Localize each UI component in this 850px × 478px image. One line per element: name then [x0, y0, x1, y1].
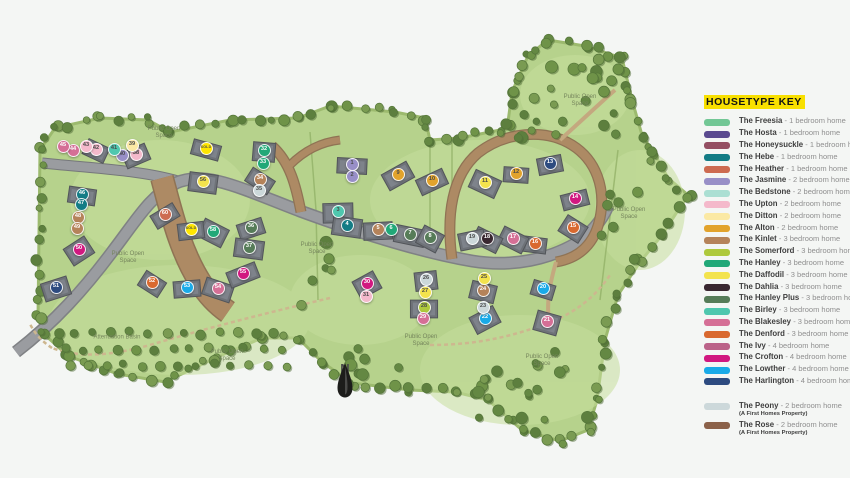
housetype-color-swatch — [704, 213, 730, 220]
legend-item: The Hebe - 1 bedroom home — [704, 151, 844, 163]
legend-item: The Ditton - 2 bedroom home — [704, 210, 844, 222]
legend-item: The Kinlet - 3 bedroom home — [704, 234, 844, 246]
plot-marker-16[interactable]: 16 — [529, 237, 542, 250]
plot-marker-19[interactable]: 19 — [466, 232, 479, 245]
legend-item: The Hanley - 3 bedroom home — [704, 258, 844, 270]
first-homes-note: (A First Homes Property) — [739, 430, 838, 437]
housetype-label: The Kinlet - 3 bedroom home — [739, 235, 840, 244]
plot-marker-43[interactable]: 43 — [80, 140, 93, 153]
plot-marker-49[interactable]: 49 — [71, 222, 84, 235]
plot-marker-15[interactable]: 15 — [567, 221, 580, 234]
plot-marker-51[interactable]: 51 — [50, 281, 63, 294]
housetype-color-swatch — [704, 355, 730, 362]
housetype-label: The Freesia - 1 bedroom home — [739, 117, 846, 126]
plot-marker-33[interactable]: 33 — [257, 157, 270, 170]
legend-item: The Dahlia - 3 bedroom home — [704, 281, 844, 293]
housetype-label: The Hanley Plus - 3 bedroom home — [739, 294, 850, 303]
plot-marker-54[interactable]: 54 — [212, 282, 225, 295]
housetype-label: The Jasmine - 2 bedroom home — [739, 176, 850, 185]
plot-marker-29[interactable]: 29 — [417, 312, 430, 325]
plot-marker-56[interactable]: 56 — [197, 175, 210, 188]
north-arrow-icon — [331, 362, 359, 398]
plot-marker-6[interactable]: 6 — [385, 223, 398, 236]
housetype-label: The Heather - 1 bedroom home — [739, 165, 848, 174]
housetype-color-swatch — [704, 319, 730, 326]
legend-item: The Daffodil - 3 bedroom home — [704, 269, 844, 281]
plot-marker-45[interactable]: 45 — [57, 140, 70, 153]
housetype-color-swatch — [704, 201, 730, 208]
housetype-label: The Harlington - 4 bedroom home — [739, 377, 850, 386]
housetype-label: The Lowther - 4 bedroom home — [739, 365, 849, 374]
plot-marker-58[interactable]: 58 — [207, 225, 220, 238]
plot-marker-60[interactable]: 60 — [159, 208, 172, 221]
plot-marker-8[interactable]: 8 — [424, 231, 437, 244]
legend-item: The Lowther - 4 bedroom home — [704, 364, 844, 376]
housetype-label: The Ditton - 2 bedroom home — [739, 212, 841, 221]
legend-item: The Denford - 3 bedroom home — [704, 328, 844, 340]
legend-item: The Rose - 2 bedroom home(A First Homes … — [704, 421, 844, 437]
housetype-color-swatch — [704, 343, 730, 350]
plot-marker-41[interactable]: 41 — [108, 143, 121, 156]
first-homes-note: (A First Homes Property) — [739, 411, 842, 418]
plot-marker-17[interactable]: 17 — [507, 232, 520, 245]
housetype-color-swatch — [704, 378, 730, 385]
housetype-label: The Dahlia - 3 bedroom home — [739, 283, 842, 292]
housetype-label: The Denford - 3 bedroom home — [739, 330, 848, 339]
housetype-color-swatch — [704, 190, 730, 197]
legend-item: The Heather - 1 bedroom home — [704, 163, 844, 175]
plot-marker-20[interactable]: 20 — [537, 282, 550, 295]
housetype-color-swatch — [704, 178, 730, 185]
plot-marker-37[interactable]: 37 — [243, 241, 256, 254]
legend-item: The Alton - 2 bedroom home — [704, 222, 844, 234]
plot-marker-39[interactable]: 39 — [126, 139, 139, 152]
plot-marker-27[interactable]: 27 — [419, 286, 432, 299]
housetype-color-swatch — [704, 142, 730, 149]
plot-marker-36[interactable]: 36 — [245, 221, 258, 234]
plot-marker-7[interactable]: 7 — [404, 228, 417, 241]
housetype-label: The Blakesley - 3 bedroom home — [739, 318, 850, 327]
plot-marker-1[interactable]: 1 — [346, 158, 359, 171]
housetype-label: The Honeysuckle - 1 bedroom home — [739, 141, 850, 150]
legend-item: The Harlington - 4 bedroom home — [704, 376, 844, 388]
plot-marker-13[interactable]: 13 — [544, 157, 557, 170]
plot-marker-sold[interactable]: SOLD — [185, 223, 198, 236]
plot-marker-53[interactable]: 53 — [181, 281, 194, 294]
legend-item: The Bedstone - 2 bedroom home — [704, 187, 844, 199]
legend-title: HOUSETYPE KEY — [704, 95, 805, 109]
plot-marker-3[interactable]: 3 — [332, 205, 345, 218]
legend-item: The Ivy - 4 bedroom home — [704, 340, 844, 352]
plot-marker-47[interactable]: 47 — [75, 198, 88, 211]
housetype-color-swatch — [704, 331, 730, 338]
plot-marker-14[interactable]: 14 — [569, 192, 582, 205]
housetype-label: The Daffodil - 3 bedroom home — [739, 271, 848, 280]
housetype-label: The Hanley - 3 bedroom home — [739, 259, 844, 268]
housetype-label: The Crofton - 4 bedroom home — [739, 353, 847, 362]
housetype-color-swatch — [704, 403, 730, 410]
plot-marker-24[interactable]: 24 — [477, 284, 490, 297]
north-compass: N — [331, 362, 359, 376]
plot-marker-4[interactable]: 4 — [341, 219, 354, 232]
housetype-color-swatch — [704, 422, 730, 429]
legend-item: The Birley - 3 bedroom home — [704, 305, 844, 317]
housetype-label: The Peony - 2 bedroom home(A First Homes… — [739, 402, 842, 418]
plot-marker-21[interactable]: 21 — [541, 315, 554, 328]
plot-marker-2[interactable]: 2 — [346, 170, 359, 183]
housetype-color-swatch — [704, 296, 730, 303]
legend-item: The Freesia - 1 bedroom home — [704, 116, 844, 128]
legend-item: The Blakesley - 3 bedroom home — [704, 317, 844, 329]
housetype-color-swatch — [704, 260, 730, 267]
housetype-label: The Bedstone - 2 bedroom home — [739, 188, 850, 197]
plot-marker-18[interactable]: 18 — [481, 232, 494, 245]
plot-marker-26[interactable]: 26 — [420, 273, 433, 286]
housetype-label: The Somerford - 3 bedroom home — [739, 247, 850, 256]
housetype-color-swatch — [704, 154, 730, 161]
plot-marker-sold[interactable]: SOLD — [200, 142, 213, 155]
housetype-color-swatch — [704, 284, 730, 291]
plot-marker-5[interactable]: 5 — [372, 223, 385, 236]
housetype-color-swatch — [704, 272, 730, 279]
housetype-label: The Hebe - 1 bedroom home — [739, 153, 838, 162]
plot-marker-25[interactable]: 25 — [478, 272, 491, 285]
plot-marker-32[interactable]: 32 — [258, 144, 271, 157]
housetype-color-swatch — [704, 225, 730, 232]
housetype-label: The Hosta - 1 bedroom home — [739, 129, 840, 138]
housetype-label: The Upton - 2 bedroom home — [739, 200, 841, 209]
plot-marker-31[interactable]: 31 — [360, 290, 373, 303]
housetype-key-items: The Freesia - 1 bedroom homeThe Hosta - … — [704, 116, 844, 437]
legend-item: The Hanley Plus - 3 bedroom home — [704, 293, 844, 305]
housetype-color-swatch — [704, 367, 730, 374]
legend-item: The Hosta - 1 bedroom home — [704, 128, 844, 140]
plot-marker-30[interactable]: 30 — [361, 277, 374, 290]
legend-item: The Honeysuckle - 1 bedroom home — [704, 140, 844, 152]
housetype-color-swatch — [704, 237, 730, 244]
plot-marker-23[interactable]: 23 — [477, 301, 490, 314]
legend-item: The Upton - 2 bedroom home — [704, 199, 844, 211]
plot-marker-10[interactable]: 10 — [426, 174, 439, 187]
plot-marker-55[interactable]: 55 — [237, 267, 250, 280]
housetype-color-swatch — [704, 249, 730, 256]
housetype-label: The Rose - 2 bedroom home(A First Homes … — [739, 421, 838, 437]
legend-item: The Crofton - 4 bedroom home — [704, 352, 844, 364]
legend-item: The Jasmine - 2 bedroom home — [704, 175, 844, 187]
site-plan: 1234567891011121314151617181920212223242… — [0, 0, 850, 478]
plot-marker-52[interactable]: 52 — [146, 276, 159, 289]
plot-marker-12[interactable]: 12 — [510, 167, 523, 180]
housetype-label: The Birley - 3 bedroom home — [739, 306, 840, 315]
housetype-label: The Ivy - 4 bedroom home — [739, 342, 829, 351]
housetype-color-swatch — [704, 119, 730, 126]
legend-item: The Somerford - 3 bedroom home — [704, 246, 844, 258]
plot-marker-11[interactable]: 11 — [479, 176, 492, 189]
housetype-color-swatch — [704, 166, 730, 173]
plot-marker-35[interactable]: 35 — [253, 184, 266, 197]
housetype-label: The Alton - 2 bedroom home — [739, 224, 838, 233]
plot-marker-50[interactable]: 50 — [73, 243, 86, 256]
housetype-color-swatch — [704, 308, 730, 315]
housetype-color-swatch — [704, 131, 730, 138]
legend-item: The Peony - 2 bedroom home(A First Homes… — [704, 402, 844, 418]
plot-marker-9[interactable]: 9 — [392, 168, 405, 181]
housetype-key-legend: HOUSETYPE KEY The Freesia - 1 bedroom ho… — [704, 92, 844, 437]
